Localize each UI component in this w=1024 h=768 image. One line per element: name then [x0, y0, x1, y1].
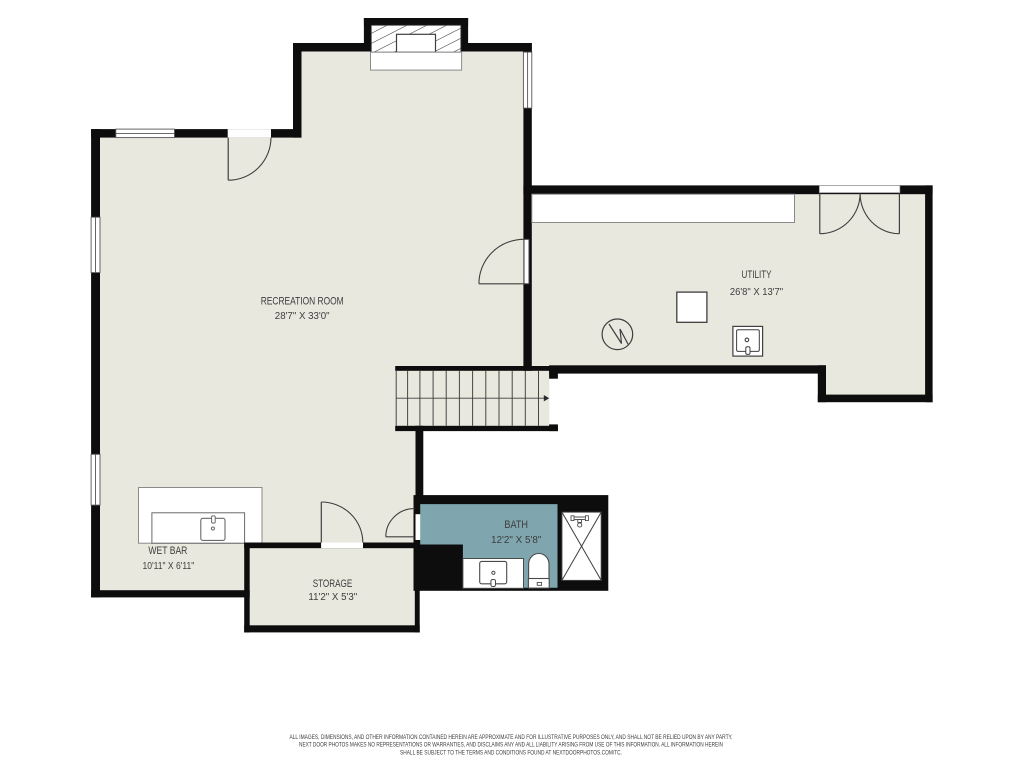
svg-text:WET BAR: WET BAR: [148, 545, 187, 557]
svg-text:11'2" X 5'3": 11'2" X 5'3": [308, 592, 357, 603]
svg-text:26'8" X 13'7": 26'8" X 13'7": [730, 287, 784, 298]
svg-text:10'11" X 6'11": 10'11" X 6'11": [143, 561, 195, 572]
svg-text:STORAGE: STORAGE: [313, 578, 353, 590]
svg-text:SHALL BE SUBJECT TO THE TERMS: SHALL BE SUBJECT TO THE TERMS AND CONDIT…: [400, 750, 622, 757]
svg-text:28'7" X 33'0": 28'7" X 33'0": [275, 311, 330, 322]
svg-text:12'2" X 5'8": 12'2" X 5'8": [491, 535, 542, 546]
svg-text:RECREATION ROOM: RECREATION ROOM: [261, 296, 344, 308]
svg-text:NEXT DOOR PHOTOS MAKES NO REPR: NEXT DOOR PHOTOS MAKES NO REPRESENTATION…: [299, 742, 723, 749]
svg-text:ALL IMAGES, DIMENSIONS, AND OT: ALL IMAGES, DIMENSIONS, AND OTHER INFORM…: [290, 734, 733, 741]
svg-text:BATH: BATH: [504, 519, 528, 531]
svg-text:UTILITY: UTILITY: [742, 269, 772, 281]
